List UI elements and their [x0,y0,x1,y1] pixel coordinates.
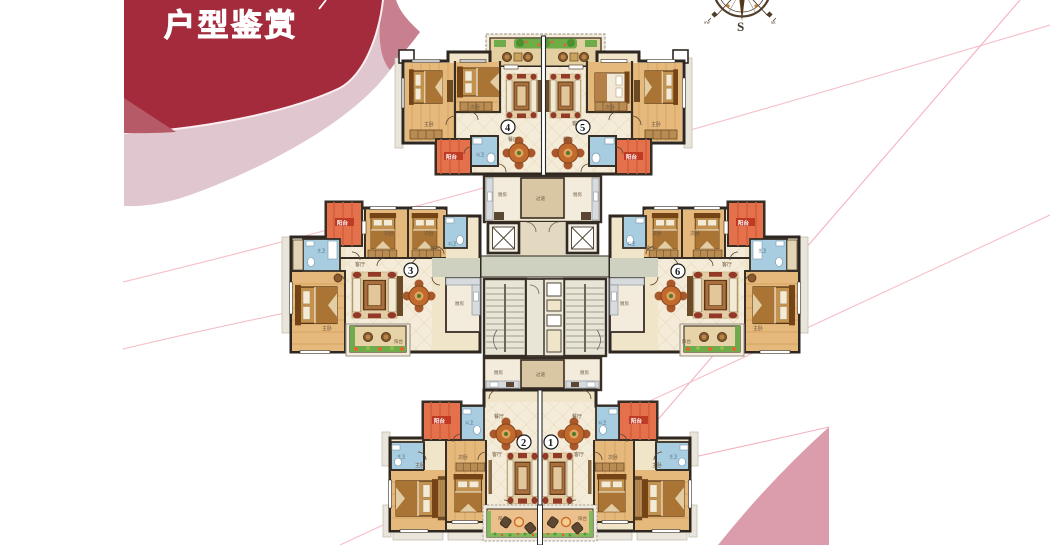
svg-text:客厅: 客厅 [574,451,584,458]
svg-text:客厅: 客厅 [722,261,732,268]
svg-text:餐厅: 餐厅 [563,136,573,143]
svg-text:次卧: 次卧 [470,104,480,111]
svg-text:厨房: 厨房 [455,300,464,307]
svg-text:公卫: 公卫 [627,241,635,246]
svg-text:餐厅: 餐厅 [494,413,504,420]
svg-text:客厅: 客厅 [355,261,365,268]
svg-text:次卧: 次卧 [458,454,468,461]
svg-text:主卧: 主卧 [424,121,434,128]
svg-text:4: 4 [505,123,511,134]
svg-text:厨房: 厨房 [498,191,507,198]
svg-text:SW: SW [704,20,710,25]
svg-text:过道: 过道 [536,371,545,378]
svg-text:阳台: 阳台 [498,515,507,522]
svg-text:餐厅: 餐厅 [430,245,440,252]
svg-text:次卧: 次卧 [605,104,615,111]
svg-text:1: 1 [548,438,553,449]
svg-text:阳台: 阳台 [738,219,750,227]
svg-text:主卫: 主卫 [669,453,677,459]
svg-text:2: 2 [521,438,526,449]
svg-text:户型鉴赏: 户型鉴赏 [164,8,298,43]
svg-text:主卧: 主卧 [415,462,425,469]
svg-text:次卧: 次卧 [652,230,662,237]
svg-text:阳台: 阳台 [626,153,638,161]
svg-text:主卧: 主卧 [322,325,332,332]
svg-text:餐厅: 餐厅 [572,413,582,420]
svg-text:公卫: 公卫 [465,420,473,425]
svg-text:公卫: 公卫 [448,241,456,246]
svg-text:厨房: 厨房 [620,300,629,307]
svg-text:过道: 过道 [536,195,545,202]
svg-text:公卫: 公卫 [598,420,606,425]
svg-text:餐厅: 餐厅 [645,245,655,252]
svg-text:阳台: 阳台 [446,153,458,161]
svg-text:阳台: 阳台 [434,417,446,425]
svg-text:S: S [737,19,744,34]
svg-text:阳台: 阳台 [578,515,587,522]
svg-text:5: 5 [580,123,585,134]
svg-text:主卫: 主卫 [317,247,325,253]
svg-text:主卧: 主卧 [652,462,662,469]
svg-text:次卧: 次卧 [608,454,618,461]
svg-text:主卫: 主卫 [758,247,766,253]
svg-text:主卧: 主卧 [753,325,763,332]
svg-text:公卫: 公卫 [476,152,484,157]
svg-text:次卧: 次卧 [424,230,434,237]
svg-text:6: 6 [675,267,680,278]
svg-text:主卧: 主卧 [651,121,661,128]
svg-text:阳台: 阳台 [682,338,691,345]
svg-text:次卧: 次卧 [384,230,394,237]
svg-text:SE: SE [771,20,776,25]
svg-text:厨房: 厨房 [494,369,503,376]
svg-text:餐厅: 餐厅 [508,136,518,143]
svg-text:次卧: 次卧 [690,230,700,237]
svg-text:厨房: 厨房 [573,191,582,198]
svg-text:阳台: 阳台 [337,219,349,227]
svg-text:3: 3 [408,266,413,277]
svg-text:阳台: 阳台 [631,417,643,425]
svg-text:阳台: 阳台 [394,338,403,345]
svg-text:主卫: 主卫 [397,453,405,459]
svg-text:客厅: 客厅 [492,451,502,458]
svg-text:厨房: 厨房 [580,369,589,376]
